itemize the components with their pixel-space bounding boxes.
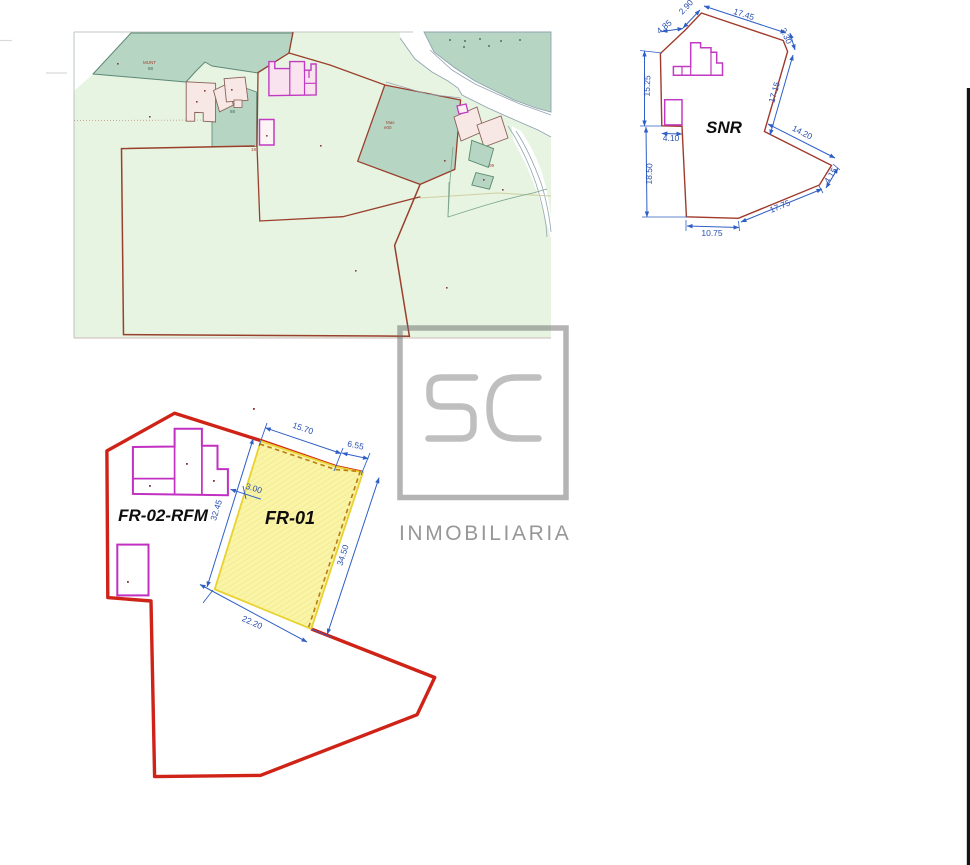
svg-text:15.70: 15.70	[291, 420, 315, 436]
svg-text:88: 88	[230, 109, 236, 114]
svg-text:32.45: 32.45	[208, 498, 224, 522]
svg-text:2.90: 2.90	[677, 0, 696, 16]
svg-text:FR-01: FR-01	[265, 508, 315, 528]
svg-text:4.10: 4.10	[663, 133, 680, 143]
svg-text:17.45: 17.45	[732, 6, 756, 22]
svg-text:14.20: 14.20	[791, 123, 815, 142]
svg-text:15.25: 15.25	[642, 75, 653, 97]
svg-text:4.85: 4.85	[655, 17, 674, 35]
svg-text:09: 09	[489, 163, 495, 168]
svg-text:MUNT: MUNT	[143, 60, 156, 65]
svg-text:18.50: 18.50	[644, 163, 655, 185]
svg-text:4.15: 4.15	[822, 166, 839, 186]
svg-text:10.75: 10.75	[701, 228, 723, 238]
svg-text:e00: e00	[384, 125, 392, 130]
svg-text:INMOBILIARIA: INMOBILIARIA	[399, 522, 571, 545]
svg-text:18: 18	[251, 147, 257, 152]
svg-text:88: 88	[148, 66, 154, 71]
svg-text:17.75: 17.75	[768, 197, 792, 214]
svg-text:22.20: 22.20	[240, 613, 264, 631]
svg-text:3.30: 3.30	[778, 26, 794, 45]
svg-text:SNR: SNR	[706, 118, 743, 137]
svg-text:6.55: 6.55	[346, 438, 365, 451]
svg-text:FR-02-RFM: FR-02-RFM	[118, 506, 209, 525]
